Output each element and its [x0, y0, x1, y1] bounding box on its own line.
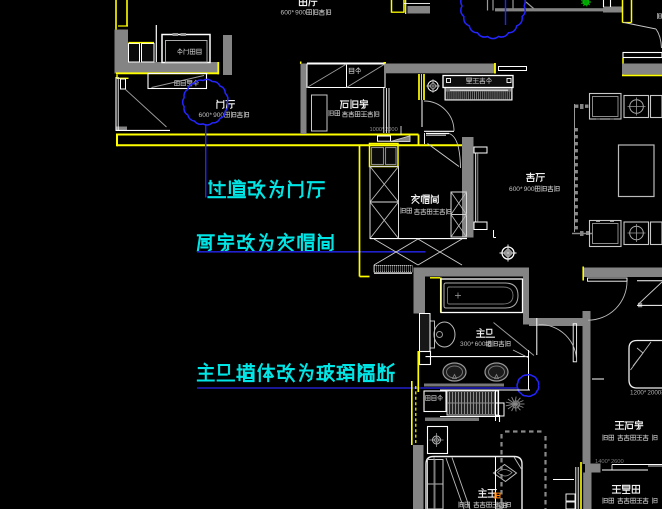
svg-text:0: 0 — [621, 459, 624, 465]
svg-text:0: 0 — [658, 389, 662, 396]
svg-text:*: * — [292, 10, 295, 17]
svg-text:0: 0 — [482, 341, 486, 348]
svg-text:0: 0 — [302, 10, 306, 17]
svg-text:0: 0 — [395, 127, 398, 133]
svg-text:*: * — [210, 112, 213, 119]
svg-text:*: * — [471, 341, 474, 348]
svg-text:*: * — [520, 186, 523, 193]
svg-text:0: 0 — [531, 186, 535, 193]
